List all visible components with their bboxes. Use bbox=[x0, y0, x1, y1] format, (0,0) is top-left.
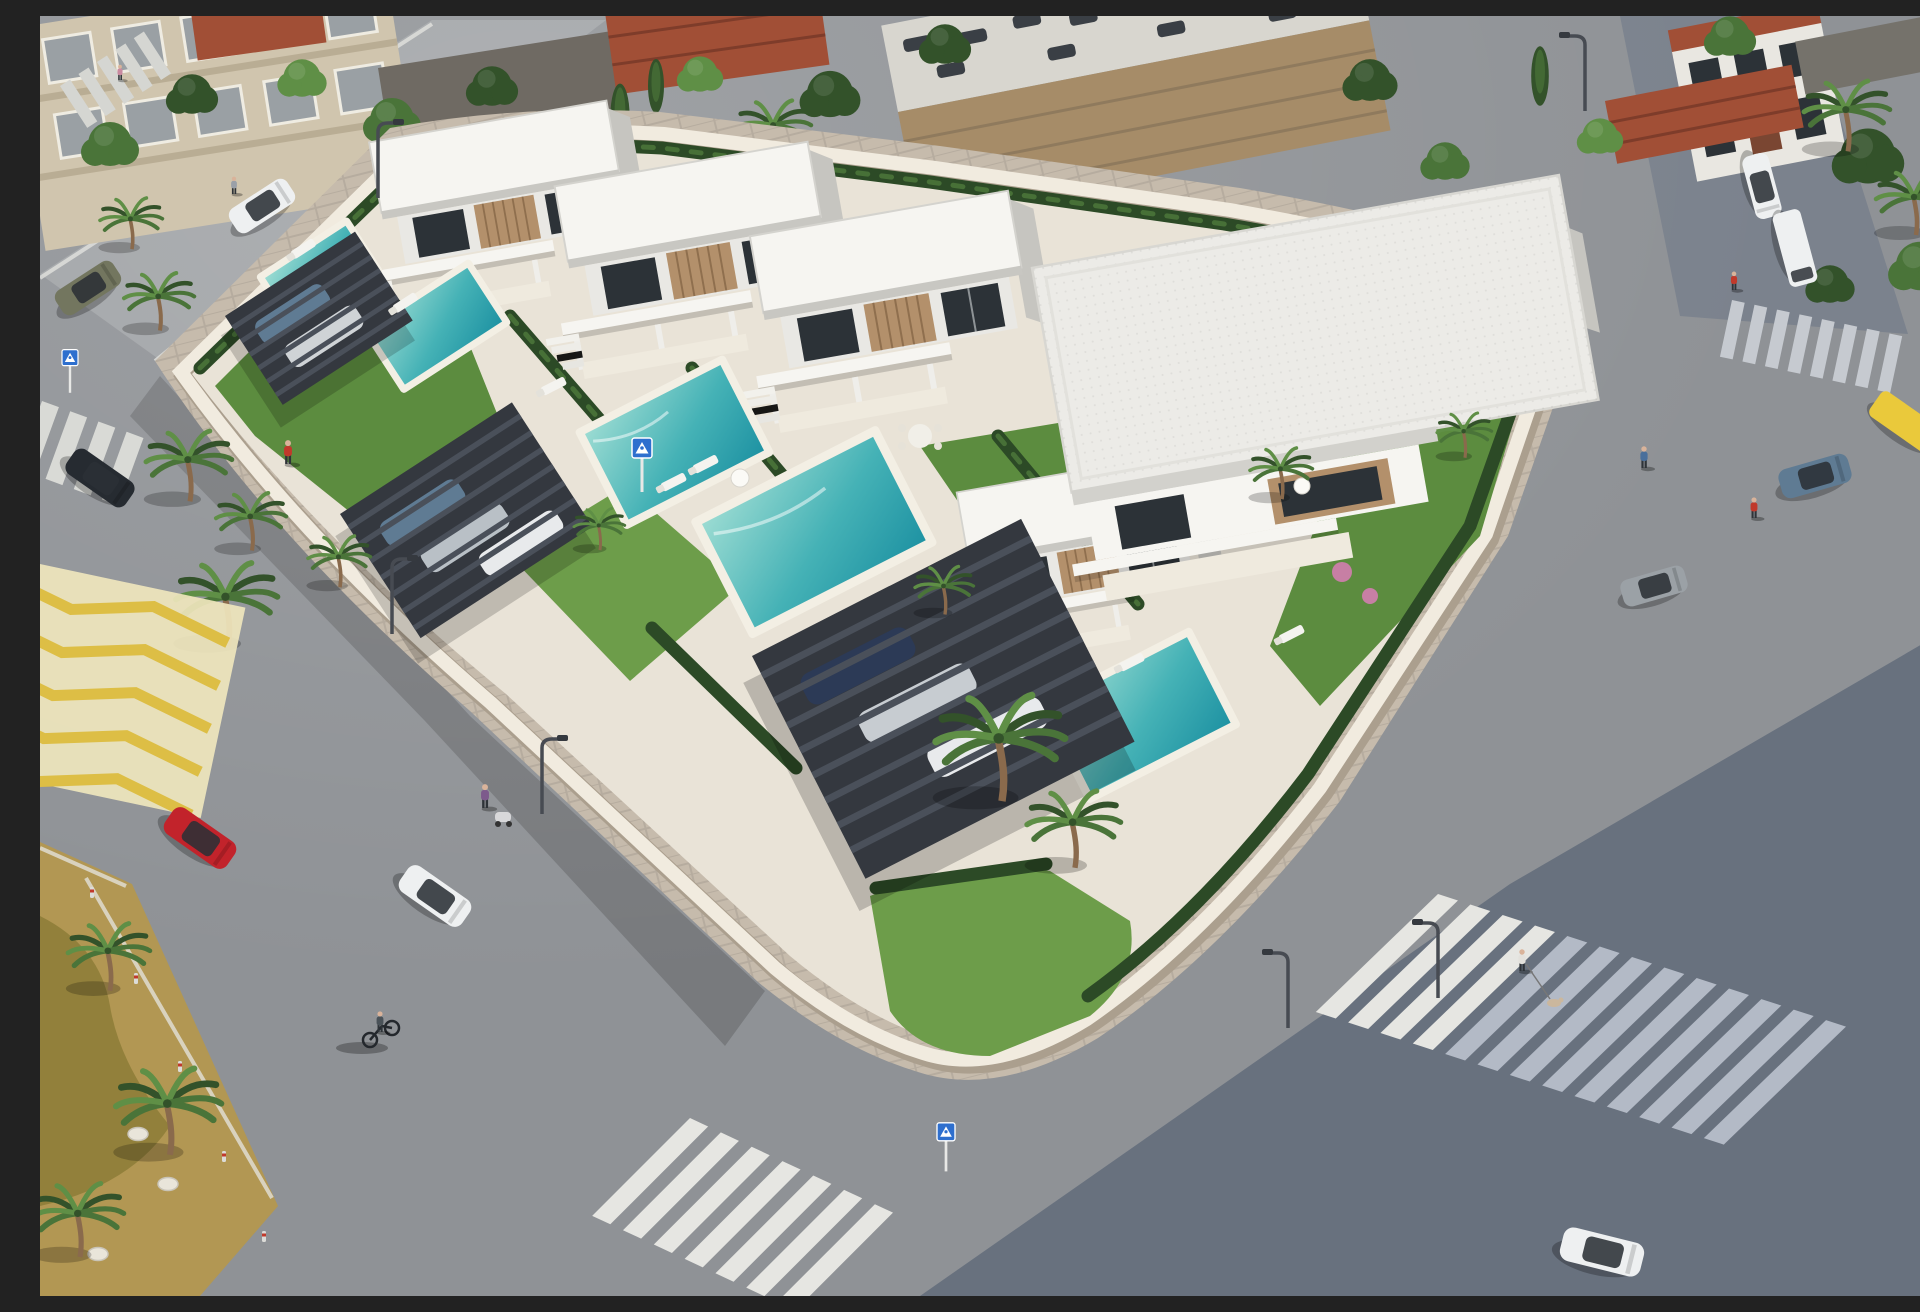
flower-bed bbox=[1332, 562, 1352, 582]
bollard bbox=[262, 1231, 266, 1242]
parasol bbox=[731, 469, 749, 487]
bollard bbox=[134, 973, 138, 984]
bollard bbox=[90, 887, 94, 898]
flower-bed bbox=[1362, 588, 1378, 604]
stone bbox=[158, 1178, 178, 1191]
dining-table bbox=[908, 424, 932, 448]
stroller bbox=[495, 812, 511, 822]
bollard bbox=[178, 1061, 182, 1072]
aerial-render-figure bbox=[40, 16, 1920, 1296]
aerial-development-render bbox=[40, 16, 1920, 1296]
stone bbox=[128, 1128, 148, 1141]
bollard bbox=[222, 1151, 226, 1162]
